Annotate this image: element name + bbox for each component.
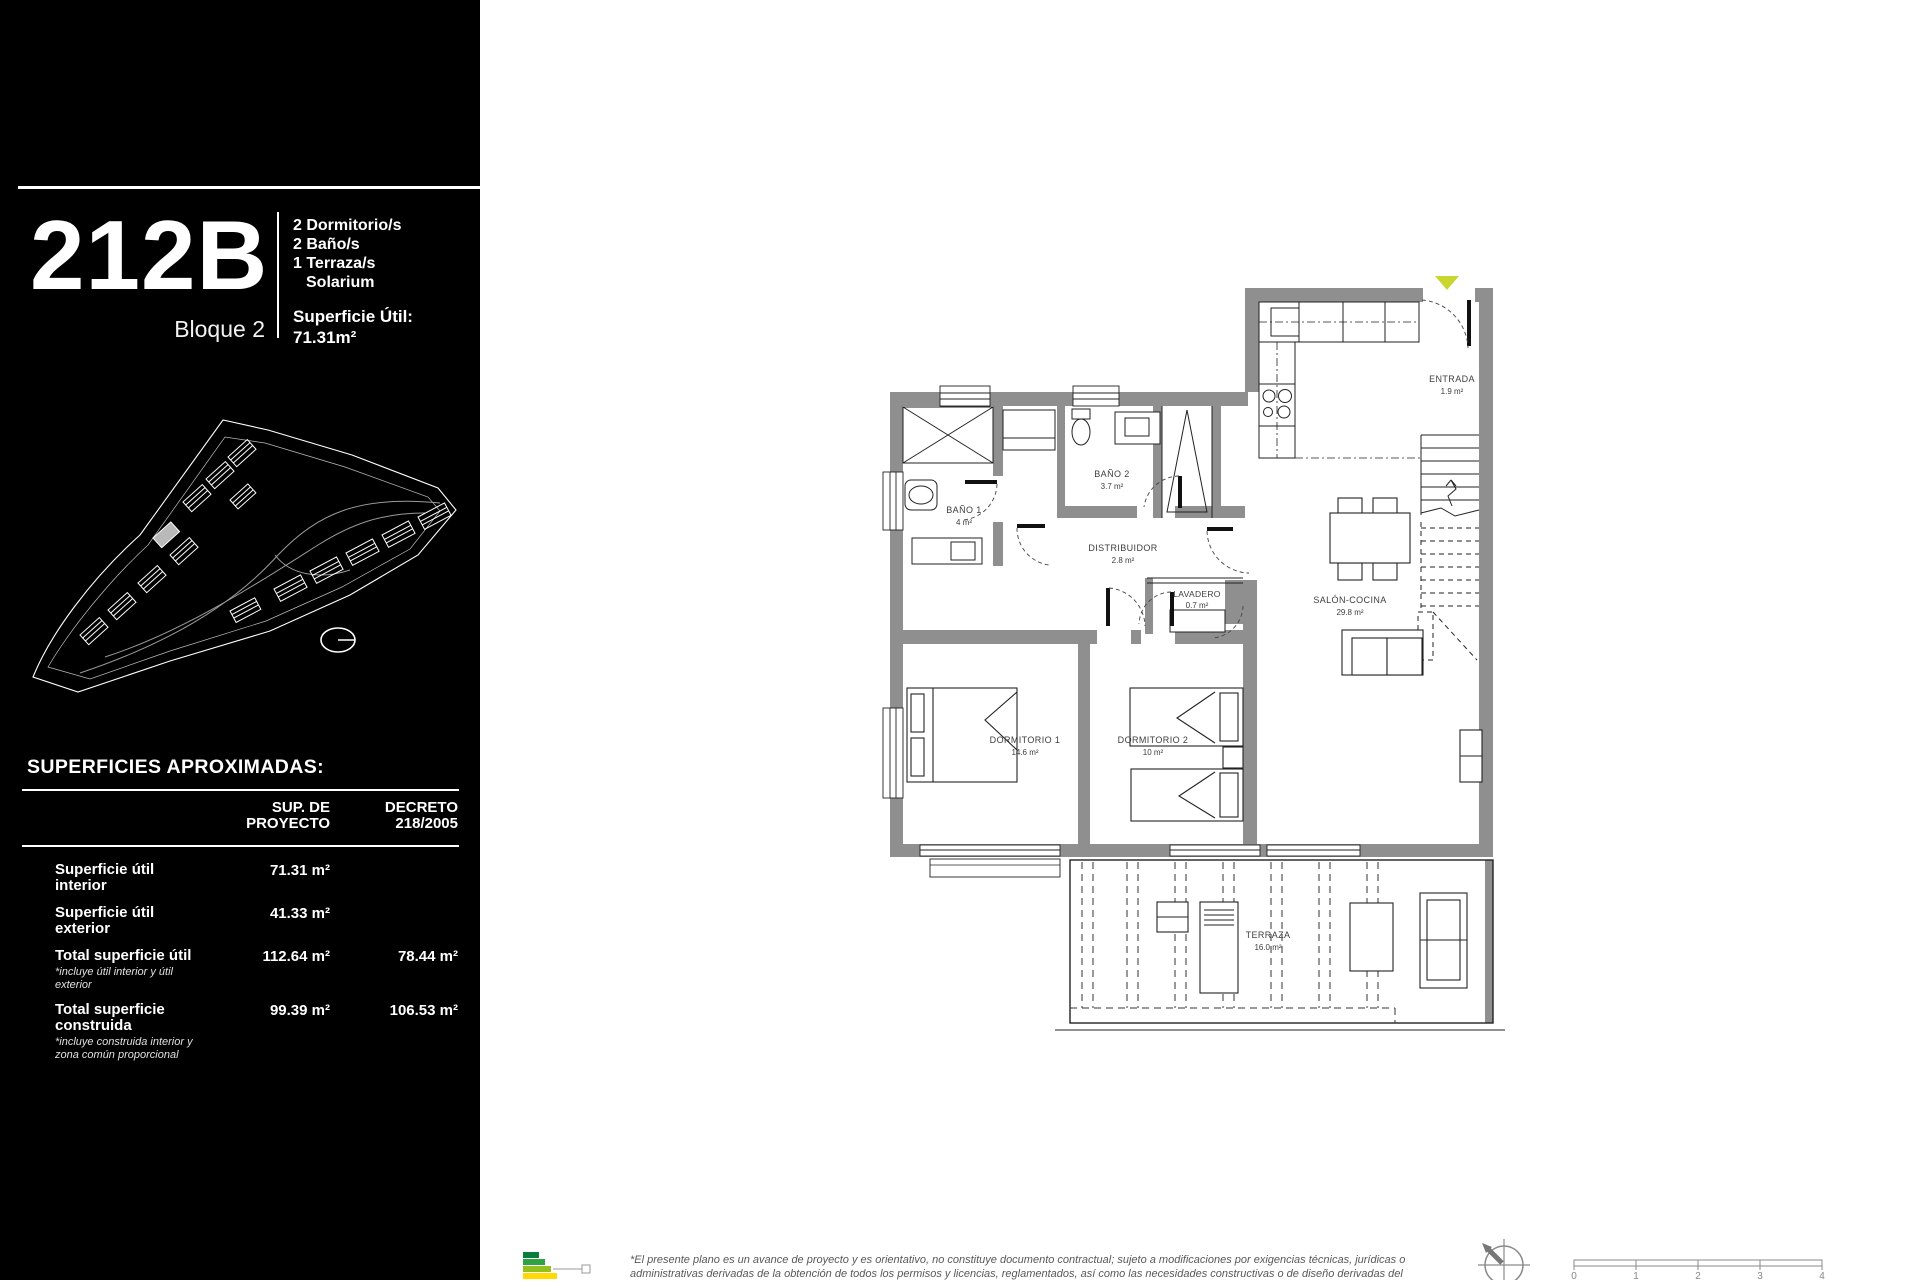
feature-solarium: Solarium: [293, 273, 401, 292]
floor-plan: ENTRADA 1.9 m² BAÑO 1 4 m² BAÑO 2 3.7 m²…: [875, 260, 1535, 1060]
header-divider: [277, 212, 279, 338]
feature-terrace: 1 Terraza/s: [293, 254, 401, 273]
feature-baths: 2 Baño/s: [293, 235, 401, 254]
room-area: 29.8 m²: [1336, 608, 1363, 617]
sofa: [1342, 630, 1482, 782]
energy-rating-icon: [523, 1250, 603, 1280]
scale-tick-label: 2: [1695, 1271, 1701, 1280]
room-area: 4 m²: [956, 518, 972, 527]
dining-table: [1330, 498, 1410, 580]
useful-area: Superficie Útil: 71.31m²: [293, 306, 413, 348]
terrace: [930, 859, 1505, 1030]
header-decreto: DECRETO 218/2005: [330, 800, 458, 832]
scale-tick-label: 4: [1819, 1271, 1825, 1280]
room-area: 3.7 m²: [1101, 482, 1124, 491]
surfaces-title: SUPERFICIES APROXIMADAS:: [27, 756, 324, 779]
room-area: 0.7 m²: [1186, 601, 1209, 610]
bathroom2-fixtures: [1072, 409, 1160, 445]
scale-bar: 0 1 2 3 4: [1568, 1252, 1838, 1280]
useful-area-label: Superficie Útil:: [293, 306, 413, 327]
sidebar-top-rule: [18, 186, 480, 189]
room-area: 14.6 m²: [1011, 748, 1038, 757]
room-label: SALÓN-COCINA: [1313, 595, 1386, 605]
sidebar-panel: 212B Bloque 2 2 Dormitorio/s 2 Baño/s 1 …: [0, 0, 480, 1280]
table-rule-bottom: [22, 845, 459, 847]
table-row: Superficie útil interior 71.31 m²: [55, 862, 458, 894]
room-label: DORMITORIO 1: [990, 735, 1061, 745]
room-label: ENTRADA: [1429, 374, 1475, 384]
disclaimer-line2: administrativas derivadas de la obtenció…: [630, 1268, 1408, 1281]
scale-tick-label: 0: [1571, 1271, 1577, 1280]
room-area: 10 m²: [1143, 748, 1164, 757]
disclaimer-line1: *El presente plano es un avance de proye…: [630, 1254, 1408, 1268]
room-area: 2.8 m²: [1112, 556, 1135, 565]
room-area: 16.0 m²: [1254, 943, 1281, 952]
highlighted-building-block: [153, 522, 180, 548]
table-rule-top: [22, 789, 459, 791]
site-plan-illustration: [20, 405, 460, 705]
disclaimer-text: *El presente plano es un avance de proye…: [630, 1254, 1408, 1281]
feature-bedrooms: 2 Dormitorio/s: [293, 216, 401, 235]
unit-number: 212B: [30, 212, 268, 298]
header-proyecto: SUP. DE PROYECTO: [210, 800, 330, 832]
room-label: TERRAZA: [1246, 930, 1291, 940]
room-label: DISTRIBUIDOR: [1088, 543, 1157, 553]
block-label: Bloque 2: [90, 316, 265, 343]
room-label: LAVADERO: [1173, 589, 1221, 599]
table-row: Superficie útil exterior 41.33 m²: [55, 905, 458, 937]
compass-icon: [1473, 1236, 1535, 1280]
table-row: Total superficie útil *incluye útil inte…: [55, 948, 458, 991]
useful-area-value: 71.31m²: [293, 327, 413, 348]
orientation-marker-icon: [1435, 276, 1459, 290]
room-label: BAÑO 1: [946, 505, 981, 515]
room-area: 1.9 m²: [1441, 387, 1464, 396]
terrace-furniture: [1157, 893, 1467, 993]
surface-table: Superficie útil interior 71.31 m² Superf…: [55, 862, 458, 1072]
scale-tick-label: 3: [1757, 1271, 1763, 1280]
room-label: BAÑO 2: [1094, 469, 1129, 479]
table-row: Total superficie construida *incluye con…: [55, 1002, 458, 1061]
site-compass-icon: [321, 628, 355, 652]
kitchen-counters: [1259, 302, 1420, 458]
scale-tick-label: 1: [1633, 1271, 1639, 1280]
surface-table-header: SUP. DE PROYECTO DECRETO 218/2005: [55, 800, 458, 832]
feature-list: 2 Dormitorio/s 2 Baño/s 1 Terraza/s Sola…: [293, 216, 401, 292]
room-label: DORMITORIO 2: [1118, 735, 1189, 745]
staircase: [1418, 435, 1479, 660]
bathroom1-fixtures: [903, 407, 993, 564]
